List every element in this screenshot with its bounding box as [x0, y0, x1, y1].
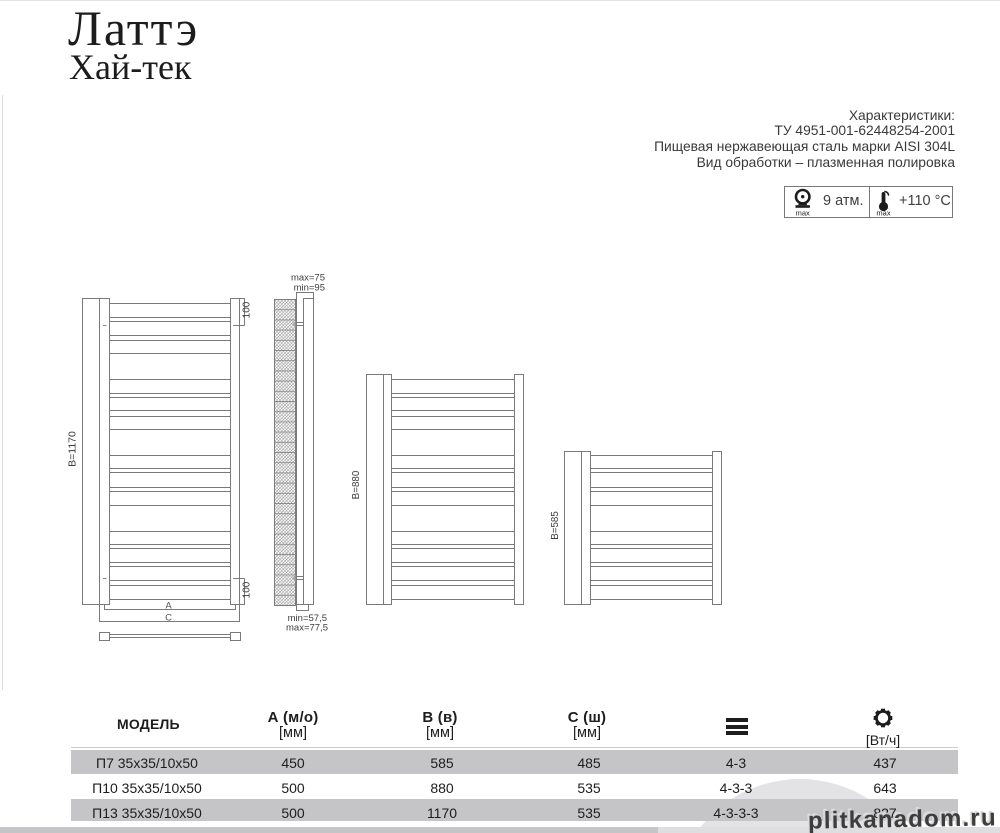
svg-text:9 атм.: 9 атм. — [823, 193, 863, 209]
svg-text:max: max — [796, 209, 810, 218]
svg-text:min=95: min=95 — [294, 282, 325, 293]
svg-text:B=585: B=585 — [550, 511, 561, 540]
svg-text:max: max — [876, 209, 890, 218]
svg-text:+110 °C: +110 °C — [899, 193, 951, 209]
svg-text:B=1170: B=1170 — [67, 431, 79, 467]
svg-text:B=880: B=880 — [351, 470, 362, 499]
svg-text:100: 100 — [242, 301, 253, 318]
svg-text:A: A — [165, 601, 172, 612]
svg-text:C: C — [165, 613, 172, 624]
svg-text:100: 100 — [242, 581, 253, 598]
svg-text:max=77,5: max=77,5 — [286, 623, 328, 634]
